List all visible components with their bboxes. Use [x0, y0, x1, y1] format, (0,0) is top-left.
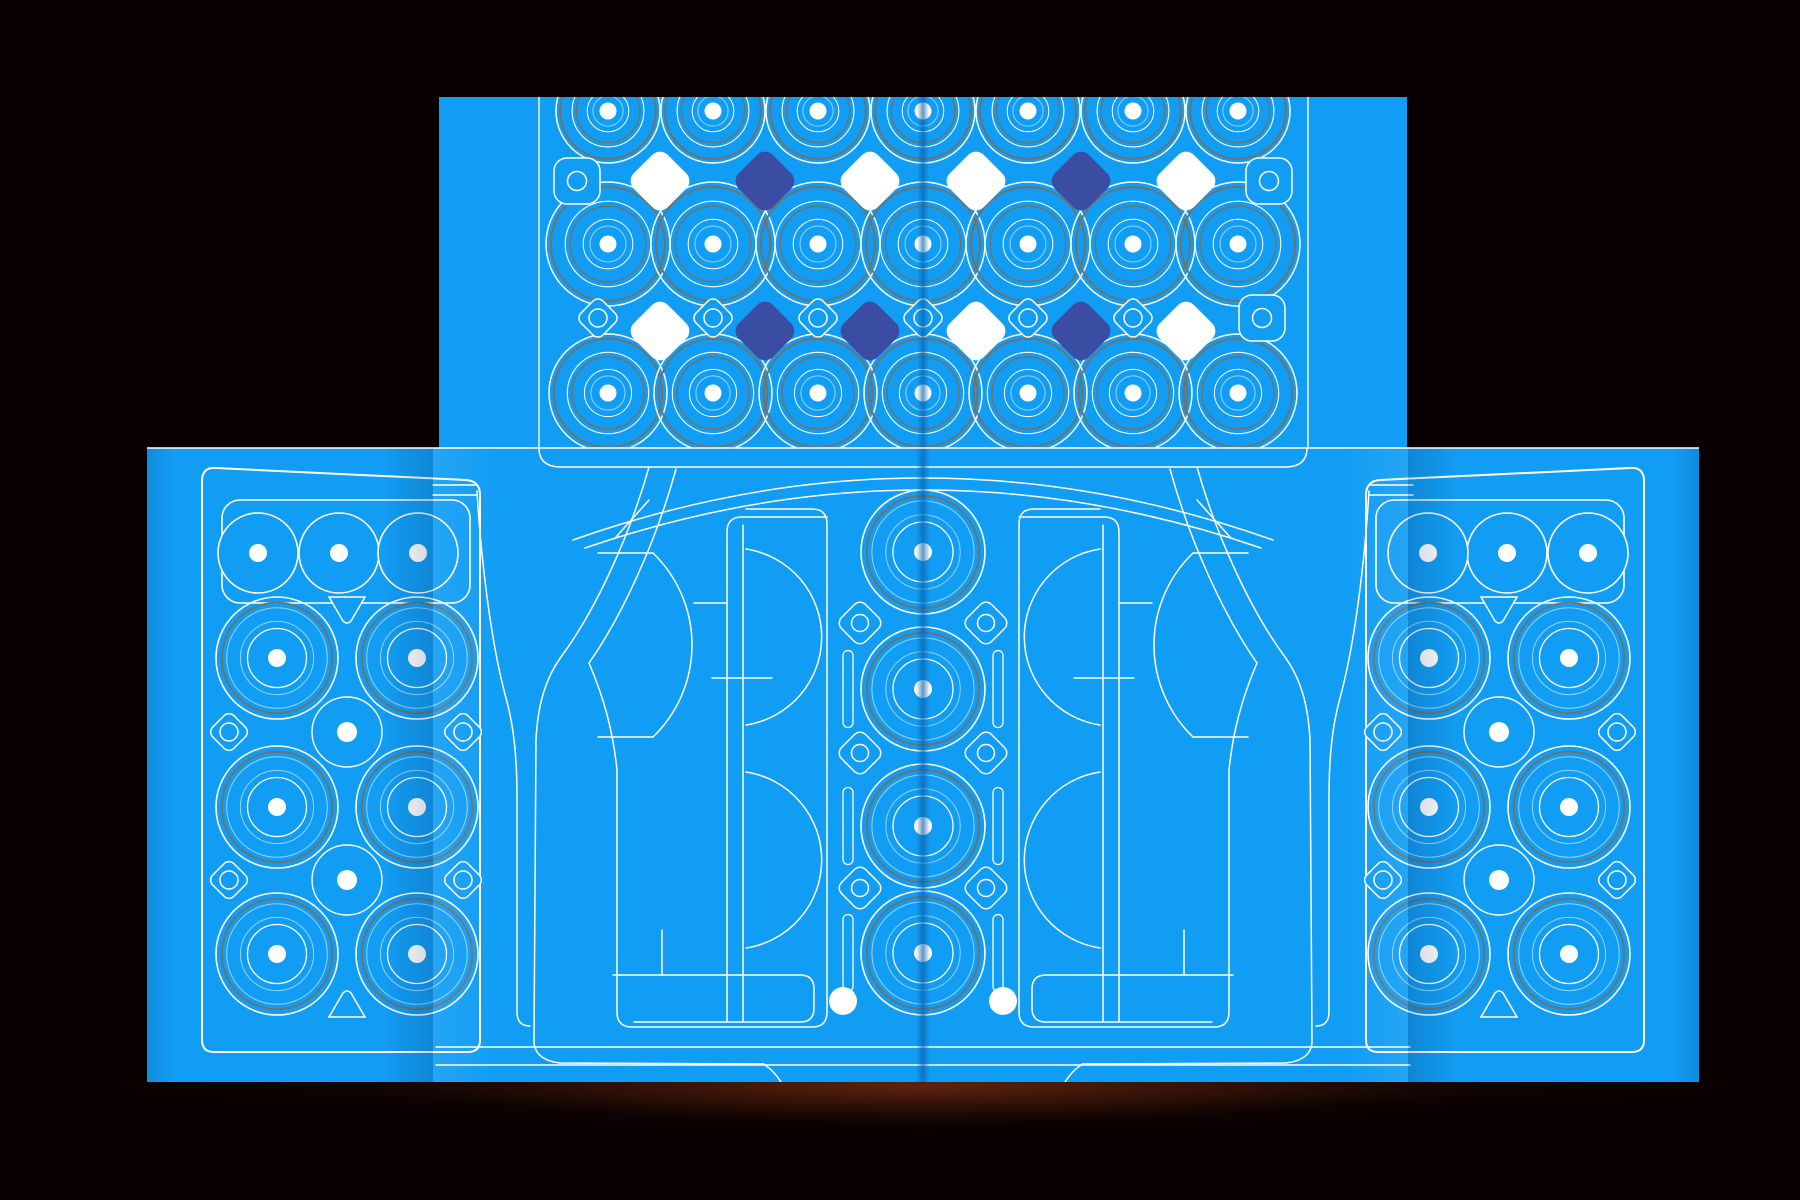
top-panel — [439, 59, 1407, 452]
center-dot — [705, 385, 722, 402]
center-dot — [249, 544, 267, 562]
valve-slot — [843, 915, 853, 992]
blueprint-illustration — [0, 0, 1800, 1200]
middle-band — [147, 448, 1699, 1082]
center-dot — [600, 103, 617, 120]
center-dot — [337, 722, 357, 742]
center-dot — [705, 103, 722, 120]
center-dot — [1125, 236, 1142, 253]
center-dot — [1560, 649, 1578, 667]
center-dot — [1489, 722, 1509, 742]
valve-slot — [993, 651, 1003, 728]
center-dot — [810, 103, 827, 120]
center-dot — [1498, 544, 1516, 562]
bed-dot — [829, 987, 857, 1015]
center-dot — [268, 945, 286, 963]
center-dot — [268, 649, 286, 667]
center-dot — [705, 236, 722, 253]
square-outline — [1239, 295, 1285, 341]
center-dot — [810, 236, 827, 253]
center-dot — [268, 798, 286, 816]
center-dot — [1125, 103, 1142, 120]
center-dot — [1560, 945, 1578, 963]
center-dot — [600, 385, 617, 402]
center-fold-shadow — [917, 97, 929, 448]
center-dot — [1020, 385, 1037, 402]
center-dot — [1230, 236, 1247, 253]
center-dot — [1020, 236, 1037, 253]
center-dot — [1560, 798, 1578, 816]
center-dot — [1489, 870, 1509, 890]
blueprint-canvas — [0, 0, 1800, 1200]
square-outline — [1246, 158, 1292, 204]
center-dot — [337, 870, 357, 890]
center-dot — [1579, 544, 1597, 562]
center-dot — [1020, 103, 1037, 120]
center-dot — [330, 544, 348, 562]
valve-slot — [993, 915, 1003, 992]
valve-slot — [843, 788, 853, 865]
valve-slot — [993, 788, 1003, 865]
bed-dot — [989, 987, 1017, 1015]
center-dot — [810, 385, 827, 402]
valve-slot — [843, 651, 853, 728]
center-dot — [1230, 103, 1247, 120]
square-outline — [554, 158, 600, 204]
center-dot — [600, 236, 617, 253]
center-dot — [1125, 385, 1142, 402]
center-dot — [1230, 385, 1247, 402]
